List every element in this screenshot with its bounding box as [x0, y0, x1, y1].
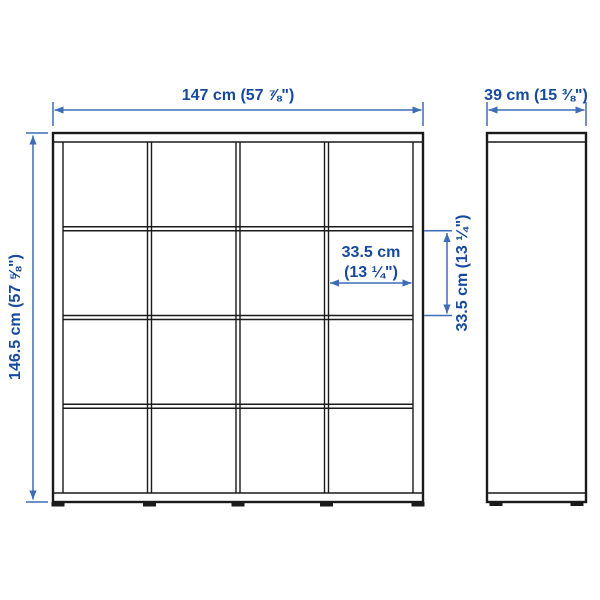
- cell-width-dimension-label-line1: 33.5 cm: [342, 243, 401, 263]
- product-dimension-diagram: 147 cm (57 ⅞") 39 cm (15 ⅜") 146.5 cm (5…: [0, 0, 600, 600]
- cell-width-dimension-label: 33.5 cm (13 ¼"): [342, 243, 401, 283]
- side-view-drawing: [487, 133, 586, 506]
- dimension-lines: [26, 102, 586, 502]
- front-view-drawing: [52, 133, 425, 507]
- height-dimension-label: 146.5 cm (57 ⅝"): [6, 254, 26, 380]
- width-dimension-label: 147 cm (57 ⅞"): [182, 86, 295, 106]
- depth-dimension-label: 39 cm (15 ⅜"): [484, 86, 588, 106]
- cell-width-dimension-label-line2: (13 ¼"): [342, 263, 401, 283]
- cell-height-dimension-label: 33.5 cm (13 ¼"): [453, 215, 473, 332]
